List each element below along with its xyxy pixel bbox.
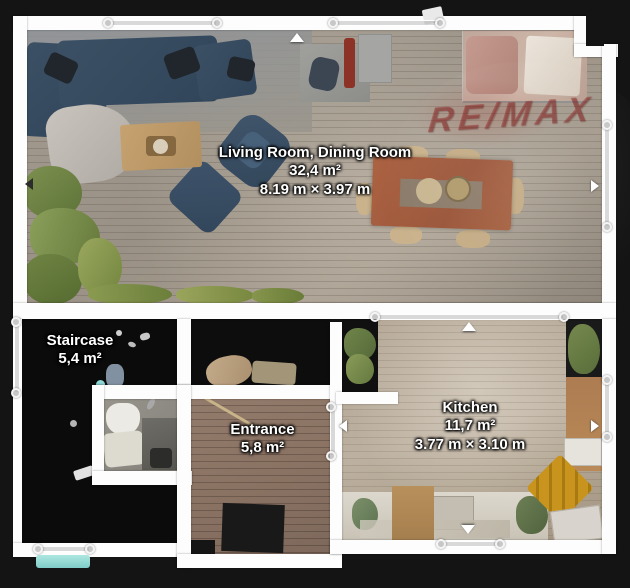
room-area: 5,4 m² bbox=[20, 350, 140, 368]
wall bbox=[177, 385, 191, 568]
staircase-debris bbox=[70, 420, 77, 427]
entrance-dark-item bbox=[191, 540, 215, 554]
window-marker-line bbox=[604, 128, 610, 226]
measure-node-icon[interactable] bbox=[33, 544, 43, 554]
alcove-cushion bbox=[466, 36, 518, 94]
measure-node-icon[interactable] bbox=[11, 388, 21, 398]
room-name: Staircase bbox=[20, 332, 140, 350]
door-direction-icon[interactable] bbox=[25, 178, 33, 190]
room-name: Entrance bbox=[200, 421, 325, 439]
wall bbox=[177, 554, 342, 568]
room-dimensions: 8.19 m × 3.97 m bbox=[165, 181, 465, 199]
dining-chair bbox=[390, 226, 422, 244]
corner-patch bbox=[586, 10, 604, 46]
door-direction-icon[interactable] bbox=[591, 180, 599, 192]
window-marker-line bbox=[41, 546, 89, 552]
room-area: 32,4 m² bbox=[165, 162, 465, 180]
plant bbox=[24, 254, 82, 304]
measure-node-icon[interactable] bbox=[328, 18, 338, 28]
hall-desk bbox=[251, 360, 296, 385]
bath-fixture bbox=[102, 430, 145, 468]
door-direction-icon[interactable] bbox=[339, 420, 347, 432]
window-marker-line bbox=[112, 20, 216, 26]
measure-node-icon[interactable] bbox=[326, 451, 336, 461]
room-name: Living Room, Dining Room bbox=[165, 144, 465, 162]
view-direction-icon[interactable] bbox=[290, 33, 304, 42]
view-direction-icon[interactable] bbox=[461, 525, 475, 534]
dining-chair bbox=[456, 230, 490, 248]
door-direction-icon[interactable] bbox=[591, 420, 599, 432]
measure-node-icon[interactable] bbox=[11, 317, 21, 327]
kitchen-plant bbox=[346, 354, 374, 384]
wall bbox=[13, 16, 587, 30]
window-marker-line bbox=[444, 541, 499, 547]
wall bbox=[13, 16, 27, 319]
window-marker-line bbox=[337, 20, 439, 26]
plant-row bbox=[176, 286, 254, 304]
measure-node-icon[interactable] bbox=[495, 539, 505, 549]
measure-node-icon[interactable] bbox=[602, 120, 612, 130]
measure-node-icon[interactable] bbox=[326, 402, 336, 412]
opening-marker-line bbox=[378, 314, 563, 320]
teal-mat bbox=[36, 555, 90, 568]
wall bbox=[92, 385, 338, 399]
measure-node-icon[interactable] bbox=[370, 312, 380, 322]
room-label-staircase: Staircase 5,4 m² bbox=[20, 332, 140, 369]
wall bbox=[92, 385, 104, 485]
counter-clutter bbox=[360, 520, 510, 538]
measure-node-icon[interactable] bbox=[103, 18, 113, 28]
measure-node-icon[interactable] bbox=[559, 312, 569, 322]
radiator bbox=[564, 438, 602, 466]
entrance-mat bbox=[221, 503, 285, 553]
room-label-living: Living Room, Dining Room 32,4 m² 8.19 m … bbox=[165, 144, 465, 199]
plant-row bbox=[252, 288, 304, 304]
sink bbox=[150, 448, 172, 468]
door-marker-line bbox=[604, 383, 610, 435]
door-marker-line bbox=[330, 409, 336, 455]
measure-node-icon[interactable] bbox=[602, 432, 612, 442]
measure-node-icon[interactable] bbox=[602, 375, 612, 385]
red-chair bbox=[344, 38, 355, 88]
room-area: 11,7 m² bbox=[385, 417, 555, 435]
kitchen-plant bbox=[568, 324, 600, 374]
measure-node-icon[interactable] bbox=[602, 222, 612, 232]
room-dimensions: 3.77 m × 3.10 m bbox=[385, 436, 555, 454]
gray-panel bbox=[358, 34, 392, 83]
room-area: 5,8 m² bbox=[200, 439, 325, 457]
plant-row bbox=[88, 284, 172, 304]
wood-cabinet bbox=[392, 486, 434, 542]
room-label-kitchen: Kitchen 11,7 m² 3.77 m × 3.10 m bbox=[385, 399, 555, 454]
view-direction-icon[interactable] bbox=[462, 322, 476, 331]
floor-plan: RE/MAX Living Room, Dining Room 32,4 m² … bbox=[0, 0, 630, 588]
measure-node-icon[interactable] bbox=[435, 18, 445, 28]
room-name: Kitchen bbox=[385, 399, 555, 417]
room-label-entrance: Entrance 5,8 m² bbox=[200, 421, 325, 458]
measure-node-icon[interactable] bbox=[212, 18, 222, 28]
measure-node-icon[interactable] bbox=[436, 539, 446, 549]
measure-node-icon[interactable] bbox=[85, 544, 95, 554]
